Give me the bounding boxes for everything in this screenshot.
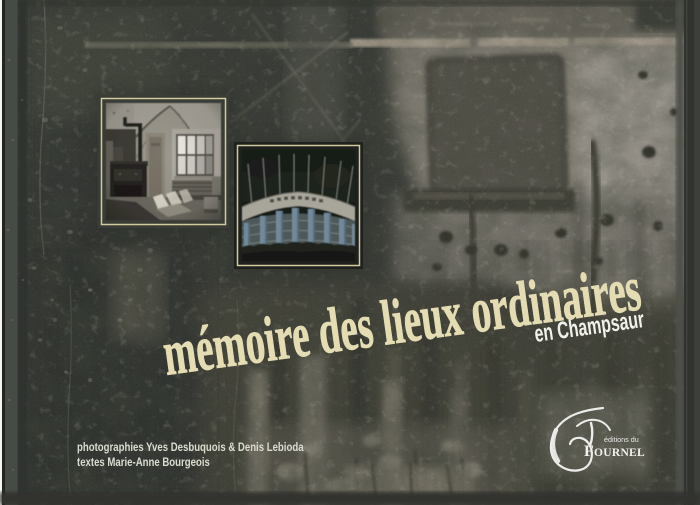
svg-text:éditions du: éditions du bbox=[604, 435, 639, 444]
svg-text:OURNEL: OURNEL bbox=[594, 447, 645, 459]
svg-text:F: F bbox=[584, 443, 594, 460]
